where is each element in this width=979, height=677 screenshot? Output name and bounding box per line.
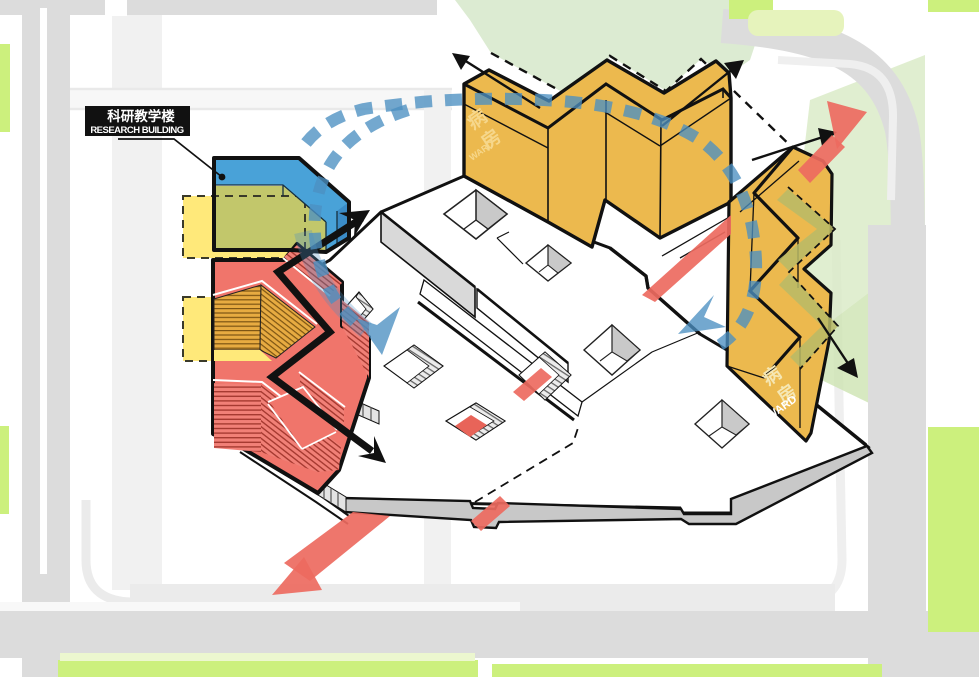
svg-text:科研教学楼: 科研教学楼 (107, 108, 175, 124)
svg-text:RESEARCH BUILDING: RESEARCH BUILDING (90, 125, 183, 136)
